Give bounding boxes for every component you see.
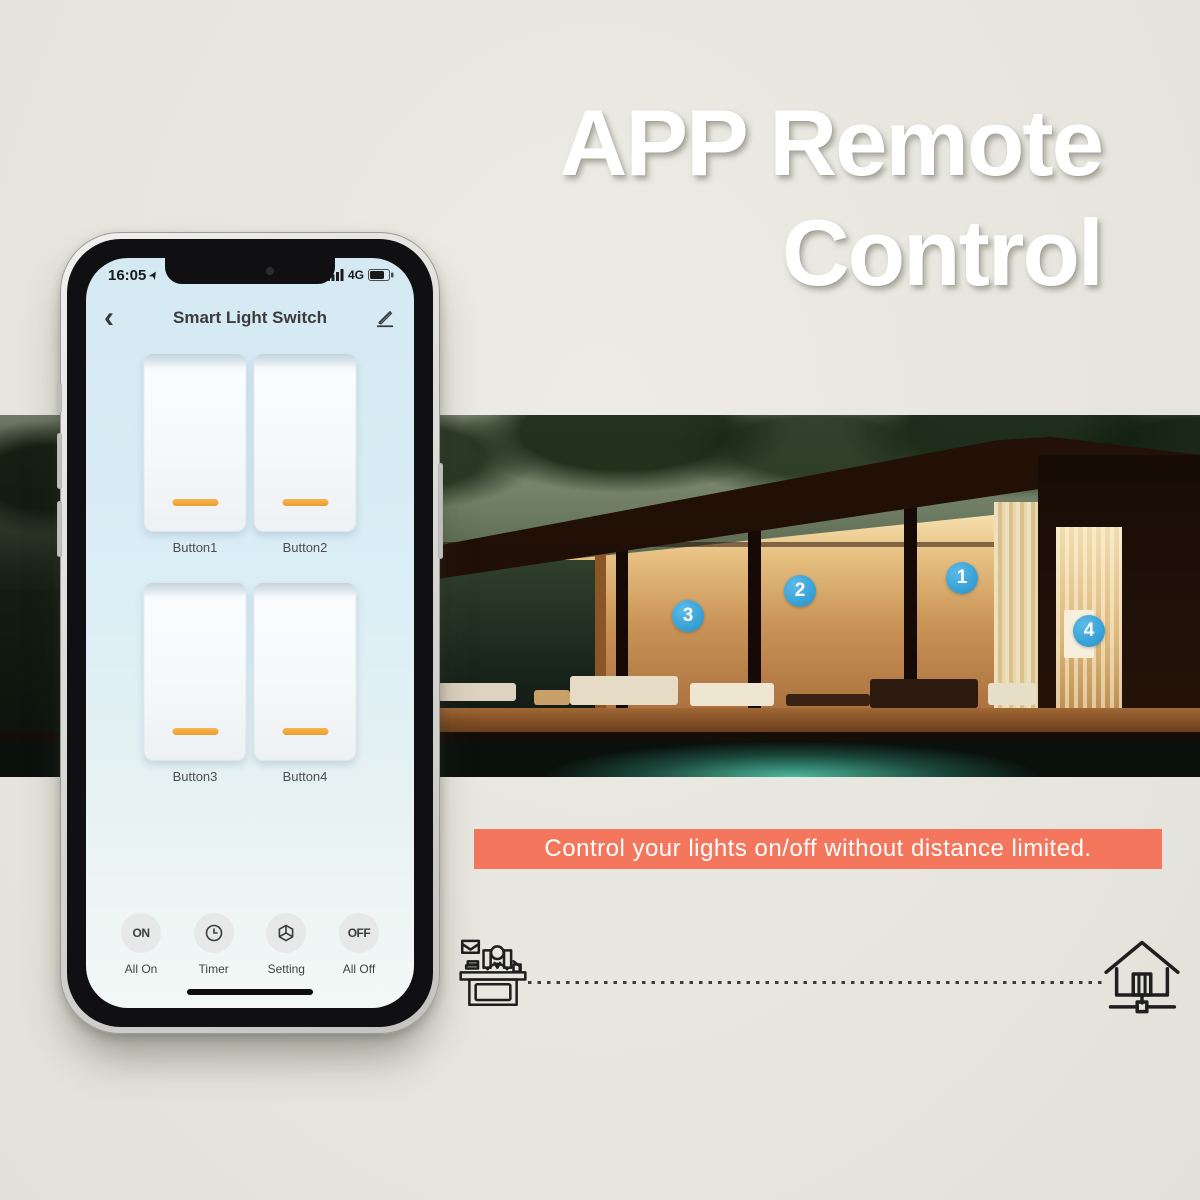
page-title: Smart Light Switch bbox=[134, 308, 366, 328]
phone-notch bbox=[165, 258, 335, 284]
marker-number: 3 bbox=[683, 605, 694, 627]
status-time: 16:05 bbox=[108, 267, 146, 284]
photo-chair bbox=[988, 683, 1036, 705]
switch-cell-1: Button1 bbox=[144, 354, 247, 555]
person-at-desk-icon bbox=[452, 934, 534, 1014]
headline-line-1: APP Remote bbox=[560, 88, 1102, 198]
phone-mockup: 16:05 ➤ 4G bbox=[60, 232, 440, 1034]
edit-button[interactable] bbox=[366, 307, 396, 329]
light-marker-3: 3 bbox=[672, 600, 704, 632]
marker-number: 1 bbox=[957, 567, 968, 589]
location-arrow-icon: ➤ bbox=[148, 269, 162, 282]
photo-side-table bbox=[534, 690, 570, 704]
app-screen: 16:05 ➤ 4G bbox=[86, 258, 414, 1008]
light-marker-2: 2 bbox=[784, 575, 816, 607]
all-on-button[interactable]: ON All On bbox=[110, 913, 172, 976]
power-button bbox=[438, 463, 443, 559]
connection-dotted-line bbox=[528, 981, 1103, 984]
switch-grid: Button1 Button2 Button3 Button4 bbox=[144, 354, 357, 784]
switch-button-4[interactable] bbox=[254, 583, 357, 761]
headline: APP Remote Control bbox=[560, 88, 1102, 308]
setting-box-icon bbox=[276, 923, 296, 943]
switch-cell-4: Button4 bbox=[254, 583, 357, 784]
photo-pool-glow bbox=[480, 734, 1080, 777]
app-header: ‹ Smart Light Switch bbox=[86, 302, 414, 334]
phone-bezel: 16:05 ➤ 4G bbox=[67, 239, 433, 1027]
photo-sofa bbox=[690, 683, 774, 707]
switch-indicator bbox=[282, 499, 328, 506]
photo-lounge-chair bbox=[438, 683, 516, 701]
home-indicator[interactable] bbox=[187, 989, 313, 995]
clock-icon bbox=[204, 923, 224, 943]
switch-button-2[interactable] bbox=[254, 354, 357, 532]
switch-button-1[interactable] bbox=[144, 354, 247, 532]
caption-banner: Control your lights on/off without dista… bbox=[474, 829, 1162, 869]
headline-line-2: Control bbox=[560, 198, 1102, 308]
pencil-edit-icon bbox=[374, 307, 396, 329]
volume-up-button bbox=[57, 433, 62, 489]
switch-button-3[interactable] bbox=[144, 583, 247, 761]
back-button[interactable]: ‹ bbox=[104, 305, 134, 331]
off-text-icon: OFF bbox=[339, 913, 379, 953]
caption-text: Control your lights on/off without dista… bbox=[544, 835, 1091, 863]
photo-coffee-table bbox=[786, 694, 870, 707]
switch-cell-3: Button3 bbox=[144, 583, 247, 784]
all-off-button[interactable]: OFF All Off bbox=[328, 913, 390, 976]
mute-switch bbox=[57, 383, 62, 413]
tool-label: Timer bbox=[199, 962, 229, 976]
timer-button[interactable]: Timer bbox=[183, 913, 245, 976]
switch-label: Button1 bbox=[173, 540, 218, 555]
switch-indicator bbox=[172, 499, 218, 506]
smart-home-network-icon bbox=[1096, 932, 1188, 1016]
battery-icon bbox=[368, 269, 394, 281]
volume-down-button bbox=[57, 501, 62, 557]
marker-number: 2 bbox=[795, 580, 806, 602]
photo-daybed bbox=[570, 676, 678, 705]
tool-label: All Off bbox=[343, 962, 375, 976]
photo-console bbox=[870, 679, 978, 708]
poster-page: APP Remote Control 1 2 3 bbox=[0, 0, 1200, 1200]
light-marker-1: 1 bbox=[946, 562, 978, 594]
switch-label: Button3 bbox=[173, 769, 218, 784]
switch-indicator bbox=[172, 728, 218, 735]
tool-label: Setting bbox=[268, 962, 305, 976]
light-marker-4: 4 bbox=[1073, 615, 1105, 647]
bottom-toolbar: ON All On Timer bbox=[86, 913, 414, 976]
switch-indicator bbox=[282, 728, 328, 735]
marker-number: 4 bbox=[1084, 620, 1095, 642]
setting-button[interactable]: Setting bbox=[255, 913, 317, 976]
switch-label: Button4 bbox=[283, 769, 328, 784]
network-type: 4G bbox=[348, 268, 364, 282]
switch-label: Button2 bbox=[283, 540, 328, 555]
switch-cell-2: Button2 bbox=[254, 354, 357, 555]
tool-label: All On bbox=[125, 962, 158, 976]
front-camera bbox=[266, 267, 274, 275]
on-text-icon: ON bbox=[121, 913, 161, 953]
